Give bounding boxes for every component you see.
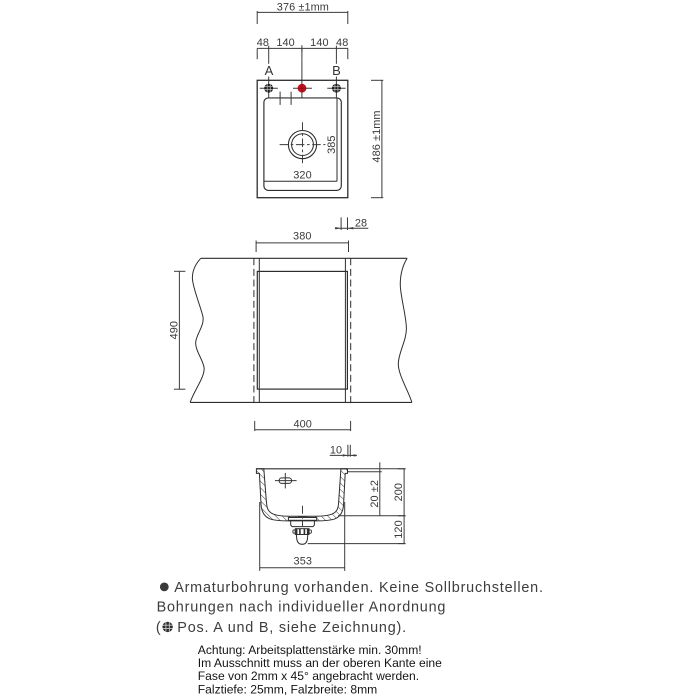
svg-text:400: 400 <box>293 418 311 430</box>
svg-text:10: 10 <box>330 445 342 457</box>
svg-text:(: ( <box>156 620 162 636</box>
svg-text:140: 140 <box>310 37 328 49</box>
svg-text:B: B <box>332 63 341 78</box>
svg-text:20 ±2: 20 ±2 <box>369 480 381 508</box>
svg-text:Fase von 2mm x 45° angebracht: Fase von 2mm x 45° angebracht werden. <box>198 669 419 683</box>
svg-text:140: 140 <box>276 37 294 49</box>
svg-text:A: A <box>265 63 274 78</box>
svg-text:353: 353 <box>294 556 312 568</box>
svg-text:48: 48 <box>336 37 348 49</box>
svg-text:Falztiefe: 25mm, Falzbreite: 8: Falztiefe: 25mm, Falzbreite: 8mm <box>198 682 377 696</box>
svg-text:385: 385 <box>326 135 338 153</box>
svg-text:380: 380 <box>293 230 311 242</box>
svg-text:Achtung: Arbeitsplattenstärke: Achtung: Arbeitsplattenstärke min. 30mm! <box>198 643 422 657</box>
svg-text:200: 200 <box>393 483 405 501</box>
svg-text:376 ±1mm: 376 ±1mm <box>277 2 329 14</box>
svg-text:Armaturbohrung vorhanden. Kein: Armaturbohrung vorhanden. Keine Sollbruc… <box>174 580 544 596</box>
svg-text:Im Ausschnitt muss an der ober: Im Ausschnitt muss an der oberen Kante e… <box>198 656 442 670</box>
svg-text:28: 28 <box>355 217 367 229</box>
svg-text:320: 320 <box>293 170 311 182</box>
svg-text:Bohrungen nach individueller A: Bohrungen nach individueller Anordnung <box>157 599 447 615</box>
svg-text:120: 120 <box>393 520 405 538</box>
svg-text:Pos. A und B, siehe Zeichnung): Pos. A und B, siehe Zeichnung). <box>177 620 407 636</box>
svg-text:490: 490 <box>169 321 181 339</box>
svg-text:486 ±1mm: 486 ±1mm <box>371 110 383 162</box>
svg-text:48: 48 <box>257 37 269 49</box>
